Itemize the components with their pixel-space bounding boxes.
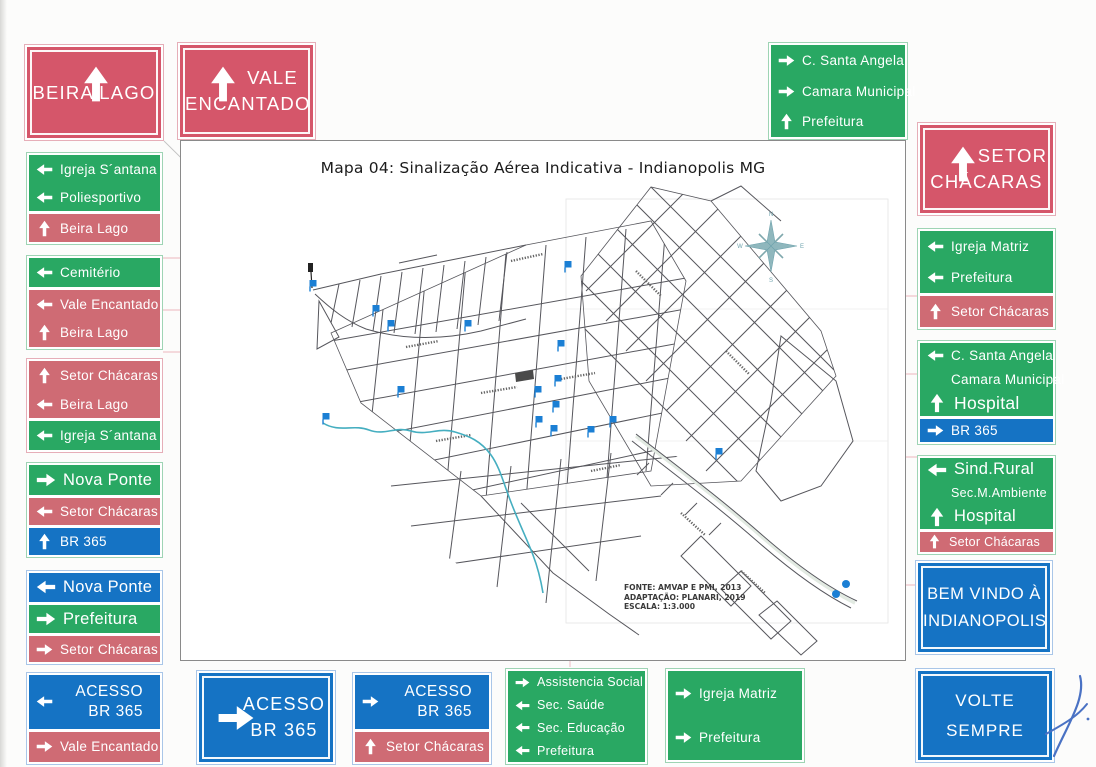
arrow-left-icon xyxy=(36,427,53,444)
sign-text: Nova Ponte xyxy=(63,471,152,490)
santa-angela-top-sign: C. Santa AngelaCamara MunicipalPrefeitur… xyxy=(768,42,908,140)
signature-icon xyxy=(1040,668,1096,767)
sign-row: Sind.Rural xyxy=(920,458,1053,482)
acesso-bottom-mid-sign: ACESSOBR 365Setor Chácaras xyxy=(352,672,492,765)
arrow-right-icon xyxy=(675,729,692,746)
arrow-right-icon xyxy=(36,738,53,755)
sign-row: Setor Chácaras xyxy=(29,361,160,390)
sign-block: Cemitério xyxy=(29,258,160,287)
svg-text:FONTE: AMVAP E PMI, 2013: FONTE: AMVAP E PMI, 2013 xyxy=(624,583,741,592)
arrow-up-icon xyxy=(927,507,947,527)
igreja-matriz-bottom-sign: Igreja MatrizPrefeitura xyxy=(665,668,805,763)
arrow-left-icon xyxy=(515,698,530,713)
sign-text: Camara Municipal xyxy=(802,84,916,99)
santa-angela-right-sign: C. Santa AngelaCamara MunicipalHospitalB… xyxy=(917,340,1056,445)
sign-row: Setor Chácaras xyxy=(920,296,1053,327)
arrow-left-icon xyxy=(927,347,944,364)
sign-text: Setor Chácaras xyxy=(951,304,1049,319)
arrow-left-icon xyxy=(927,269,944,286)
sign-block: C. Santa AngelaCamara MunicipalPrefeitur… xyxy=(771,45,905,137)
sign-row: Setor Chácaras xyxy=(355,732,489,762)
sign-text: BR 365 xyxy=(60,534,107,549)
beira-lago-top-sign: BEIRA LAGO xyxy=(24,44,164,141)
sign-panel: VOLTESEMPRE xyxy=(918,671,1052,760)
sign-text: Beira Lago xyxy=(60,221,128,236)
sign-text: Nova Ponte xyxy=(63,578,152,597)
sign-row: Beira Lago xyxy=(29,214,160,242)
svg-text:E: E xyxy=(800,244,804,250)
sign-location-marker xyxy=(398,386,405,398)
assistencia-bottom-sign: Assistencia SocialSec. SaúdeSec. Educaçã… xyxy=(505,668,648,765)
sign-block: Vale EncantadoBeira Lago xyxy=(29,290,160,347)
arrow-up-icon xyxy=(77,65,115,103)
sign-location-marker xyxy=(465,320,472,332)
sign-location-marker xyxy=(553,401,560,413)
arrow-left-icon xyxy=(36,577,56,597)
arrow-right-icon xyxy=(515,675,530,690)
sign-row: Prefeitura xyxy=(29,605,160,634)
sign-text: Igreja Matriz xyxy=(951,239,1029,254)
sign-row: ACESSOBR 365 xyxy=(29,675,160,729)
arrow-right-icon xyxy=(778,52,795,69)
arrow-left-icon xyxy=(927,238,944,255)
sign-block: Sind.RuralSec.M.AmbienteHospital xyxy=(920,458,1053,529)
sign-row: Prefeitura xyxy=(668,716,802,761)
sign-row: Igreja S´antana xyxy=(29,155,160,183)
sign-text: Sec. Saúde xyxy=(537,698,605,712)
sign-row: Sec.M.Ambiente xyxy=(920,482,1053,506)
sign-text: C. Santa Angela xyxy=(802,53,904,68)
bem-vindo-right-sign: BEM VINDO ÀINDIANOPOLIS xyxy=(915,560,1053,655)
sign-block: C. Santa AngelaCamara MunicipalHospital xyxy=(920,343,1053,416)
vale-encantado-top-sign: VALEENCANTADO xyxy=(177,42,316,140)
sign-panel: SETORCHÁCARAS xyxy=(920,125,1053,213)
sign-row: Vale Encantado xyxy=(29,290,160,319)
arrow-right-icon xyxy=(927,422,944,439)
sign-text: Cemitério xyxy=(60,265,120,280)
sign-text: Prefeitura xyxy=(537,744,594,758)
scanned-map-page: { "map": { "title": "Mapa 04: Sinalizaçã… xyxy=(0,0,1096,767)
svg-text:ADAPTAÇÃO: PLANARI, 2019: ADAPTAÇÃO: PLANARI, 2019 xyxy=(624,593,746,602)
arrow-up-icon xyxy=(927,534,942,549)
volte-sempre-bottom-sign: VOLTESEMPRE xyxy=(915,668,1055,763)
sign-row: Igreja S´antana xyxy=(29,421,160,450)
compass-rose-icon: N S E W xyxy=(737,212,804,284)
sign-block: BR 365 xyxy=(29,528,160,555)
sign-text: Sec.M.Ambiente xyxy=(951,486,1047,500)
sign-block: BR 365 xyxy=(920,419,1053,443)
sign-text: Vale Encantado xyxy=(60,297,159,312)
sign-location-marker xyxy=(323,413,330,425)
arrow-right-icon xyxy=(36,641,53,658)
sign-text: Prefeitura xyxy=(951,270,1013,285)
arrow-left-icon xyxy=(36,264,53,281)
sign-block: Igreja S´antanaPoliesportivo xyxy=(29,155,160,211)
sign-row: Igreja Matriz xyxy=(920,231,1053,262)
sign-row: Beira Lago xyxy=(29,390,160,419)
river xyxy=(323,423,543,593)
svg-text:ESCALA: 1:3.000: ESCALA: 1:3.000 xyxy=(624,602,695,611)
sign-text: Setor Chácaras xyxy=(949,535,1040,549)
sign-block: Nova Ponte xyxy=(29,573,160,602)
city-map: Mapa 04: Sinalização Aérea Indicativa - … xyxy=(180,140,906,661)
arrow-up-icon xyxy=(36,324,53,341)
arrow-up-icon xyxy=(927,303,944,320)
sind-rural-right-sign: Sind.RuralSec.M.AmbienteHospitalSetor Ch… xyxy=(917,455,1056,555)
sign-row: Prefeitura xyxy=(508,739,645,762)
sign-text: Setor Chácaras xyxy=(60,368,158,383)
sign-block: Nova Ponte xyxy=(29,465,160,495)
building-block xyxy=(515,370,534,382)
sign-location-marker xyxy=(565,261,572,273)
sign-row: BR 365 xyxy=(920,419,1053,443)
sign-text: Prefeitura xyxy=(802,114,864,129)
sign-row: Beira Lago xyxy=(29,318,160,347)
arrow-up-icon xyxy=(36,533,53,550)
arrow-up-icon xyxy=(36,367,53,384)
sign-text: Hospital xyxy=(954,393,1020,414)
sign-text: Sind.Rural xyxy=(954,460,1034,479)
arrow-right-icon xyxy=(217,699,255,737)
arrow-left-icon xyxy=(36,189,53,206)
setor-chacaras-top-sign: SETORCHÁCARAS xyxy=(917,122,1056,216)
igreja-santana-left-sign: Igreja S´antanaPoliesportivoBeira Lago xyxy=(26,152,163,245)
sign-text: Setor Chácaras xyxy=(386,739,484,754)
sign-text: Camara Municipal xyxy=(951,372,1065,387)
sign-block: Setor Chácaras xyxy=(920,296,1053,327)
sign-row: Cemitério xyxy=(29,258,160,287)
arrow-right-icon xyxy=(778,83,795,100)
svg-text:N: N xyxy=(769,212,773,218)
arrow-right-icon xyxy=(675,685,692,702)
nova-ponte-left-b-sign: Nova PontePrefeituraSetor Chácaras xyxy=(26,570,163,665)
arrow-up-icon xyxy=(362,738,379,755)
sign-text: Sec. Educação xyxy=(537,721,625,735)
sign-text: Vale Encantado xyxy=(60,739,159,754)
sign-row: Assistencia Social xyxy=(508,671,645,694)
sign-text: Beira Lago xyxy=(60,397,128,412)
setor-chacaras-left-sign: Setor ChácarasBeira LagoIgreja S´antana xyxy=(26,358,163,453)
sign-row: Setor Chácaras xyxy=(920,532,1053,553)
sign-block: Vale Encantado xyxy=(29,732,160,762)
street-map: N S E W FONTE: AMVAP E PMI, 2013 ADAPTAÇ… xyxy=(181,141,907,662)
sign-row: Igreja Matriz xyxy=(668,671,802,716)
arrow-left-icon xyxy=(36,161,53,178)
sign-row: Camara Municipal xyxy=(771,76,905,107)
sign-text-line: INDIANOPOLIS xyxy=(923,608,1045,634)
sign-row: Camara Municipal xyxy=(920,367,1053,391)
arrow-left-icon xyxy=(515,743,530,758)
sign-location-marker xyxy=(558,340,565,352)
sign-text-line: BEM VINDO À xyxy=(923,581,1045,607)
arrow-right-icon xyxy=(36,470,56,490)
sign-block: ACESSOBR 365 xyxy=(29,675,160,729)
sign-panel: ACESSOBR 365 xyxy=(199,673,333,762)
sign-row: BR 365 xyxy=(29,528,160,555)
sign-text: Setor Chácaras xyxy=(60,642,158,657)
highway-br365 xyxy=(632,434,857,608)
cemiterio-left-sign: CemitérioVale EncantadoBeira Lago xyxy=(26,255,163,350)
arrow-left-icon xyxy=(515,720,530,735)
sign-text: Igreja S´antana xyxy=(60,162,157,177)
sign-block: Beira Lago xyxy=(29,214,160,242)
arrow-left-icon xyxy=(927,460,947,480)
sign-block: Setor Chácaras xyxy=(29,498,160,525)
sign-row: Prefeitura xyxy=(771,106,905,137)
markers-layer xyxy=(310,261,851,598)
sign-block: Setor Chácaras xyxy=(355,732,489,762)
sign-block: Setor Chácaras xyxy=(920,532,1053,553)
igreja-matriz-right-sign: Igreja MatrizPrefeituraSetor Chácaras xyxy=(917,228,1056,330)
acesso-bottom-left-sign: ACESSOBR 365Vale Encantado xyxy=(26,672,163,765)
arrow-left-icon xyxy=(36,503,53,520)
sign-text-lines: ACESSOBR 365 xyxy=(386,682,482,722)
sign-text-lines: ACESSOBR 365 xyxy=(60,682,153,722)
sign-location-marker xyxy=(536,416,543,428)
sign-text: Assistencia Social xyxy=(537,675,643,689)
sign-row: Sec. Saúde xyxy=(508,694,645,717)
arrow-left-icon xyxy=(36,296,53,313)
arrow-left-icon xyxy=(36,693,53,710)
sign-text: Beira Lago xyxy=(60,325,128,340)
sign-row: C. Santa Angela xyxy=(920,343,1053,367)
sign-row: Setor Chácaras xyxy=(29,498,160,525)
sign-row: Prefeitura xyxy=(920,262,1053,293)
sign-location-marker xyxy=(588,426,595,438)
sign-row: Hospital xyxy=(920,505,1053,529)
sign-block: Setor Chácaras xyxy=(29,636,160,662)
acesso-bottom-big-sign: ACESSOBR 365 xyxy=(196,670,336,765)
sign-text: C. Santa Angela xyxy=(951,348,1053,363)
sign-row: Nova Ponte xyxy=(29,465,160,495)
sign-location-marker xyxy=(373,305,380,317)
arrow-up-icon xyxy=(778,113,795,130)
sign-block: Prefeitura xyxy=(29,605,160,634)
sign-row: ACESSOBR 365 xyxy=(355,675,489,729)
sign-row: Sec. Educação xyxy=(508,717,645,740)
arrow-right-icon xyxy=(362,693,379,710)
arrow-up-icon xyxy=(36,220,53,237)
sign-row: Hospital xyxy=(920,391,1053,415)
sign-block: Igreja S´antana xyxy=(29,421,160,450)
sign-text: Igreja S´antana xyxy=(60,428,157,443)
sign-block: Setor ChácarasBeira Lago xyxy=(29,361,160,418)
sign-text: Setor Chácaras xyxy=(60,504,158,519)
sign-location-marker xyxy=(842,580,850,588)
sign-row: C. Santa Angela xyxy=(771,45,905,76)
scale-note: FONTE: AMVAP E PMI, 2013 ADAPTAÇÃO: PLAN… xyxy=(624,583,746,611)
sign-text: BR 365 xyxy=(951,423,998,438)
sign-text: Igreja Matriz xyxy=(699,686,777,701)
sign-row: Setor Chácaras xyxy=(29,636,160,662)
sign-location-marker xyxy=(555,375,562,387)
arrow-up-icon xyxy=(204,65,242,103)
sign-text: Poliesportivo xyxy=(60,190,141,205)
sign-location-marker xyxy=(832,590,840,598)
svg-text:S: S xyxy=(769,278,773,284)
sign-panel: VALEENCANTADO xyxy=(180,45,313,137)
arrow-left-icon xyxy=(36,396,53,413)
arrow-up-icon xyxy=(944,145,982,183)
arrow-right-icon xyxy=(36,609,56,629)
sign-text: Hospital xyxy=(954,507,1016,526)
sign-row: Vale Encantado xyxy=(29,732,160,762)
sign-block: Igreja MatrizPrefeitura xyxy=(668,671,802,760)
sign-panel: BEM VINDO ÀINDIANOPOLIS xyxy=(918,563,1050,652)
arrow-up-icon xyxy=(927,393,947,413)
sign-block: ACESSOBR 365 xyxy=(355,675,489,729)
sign-text: Prefeitura xyxy=(63,610,138,629)
sign-block: Igreja MatrizPrefeitura xyxy=(920,231,1053,293)
sign-row: Poliesportivo xyxy=(29,183,160,211)
sign-block: Assistencia SocialSec. SaúdeSec. Educaçã… xyxy=(508,671,645,762)
svg-text:W: W xyxy=(737,244,743,250)
nova-ponte-left-a-sign: Nova PonteSetor ChácarasBR 365 xyxy=(26,462,163,558)
sign-location-marker xyxy=(535,386,542,398)
sign-text-line: VOLTE xyxy=(923,686,1047,716)
sign-panel: BEIRA LAGO xyxy=(27,47,161,138)
sign-text: Prefeitura xyxy=(699,730,761,745)
sign-row: Nova Ponte xyxy=(29,573,160,602)
sign-text-line: SEMPRE xyxy=(923,716,1047,746)
